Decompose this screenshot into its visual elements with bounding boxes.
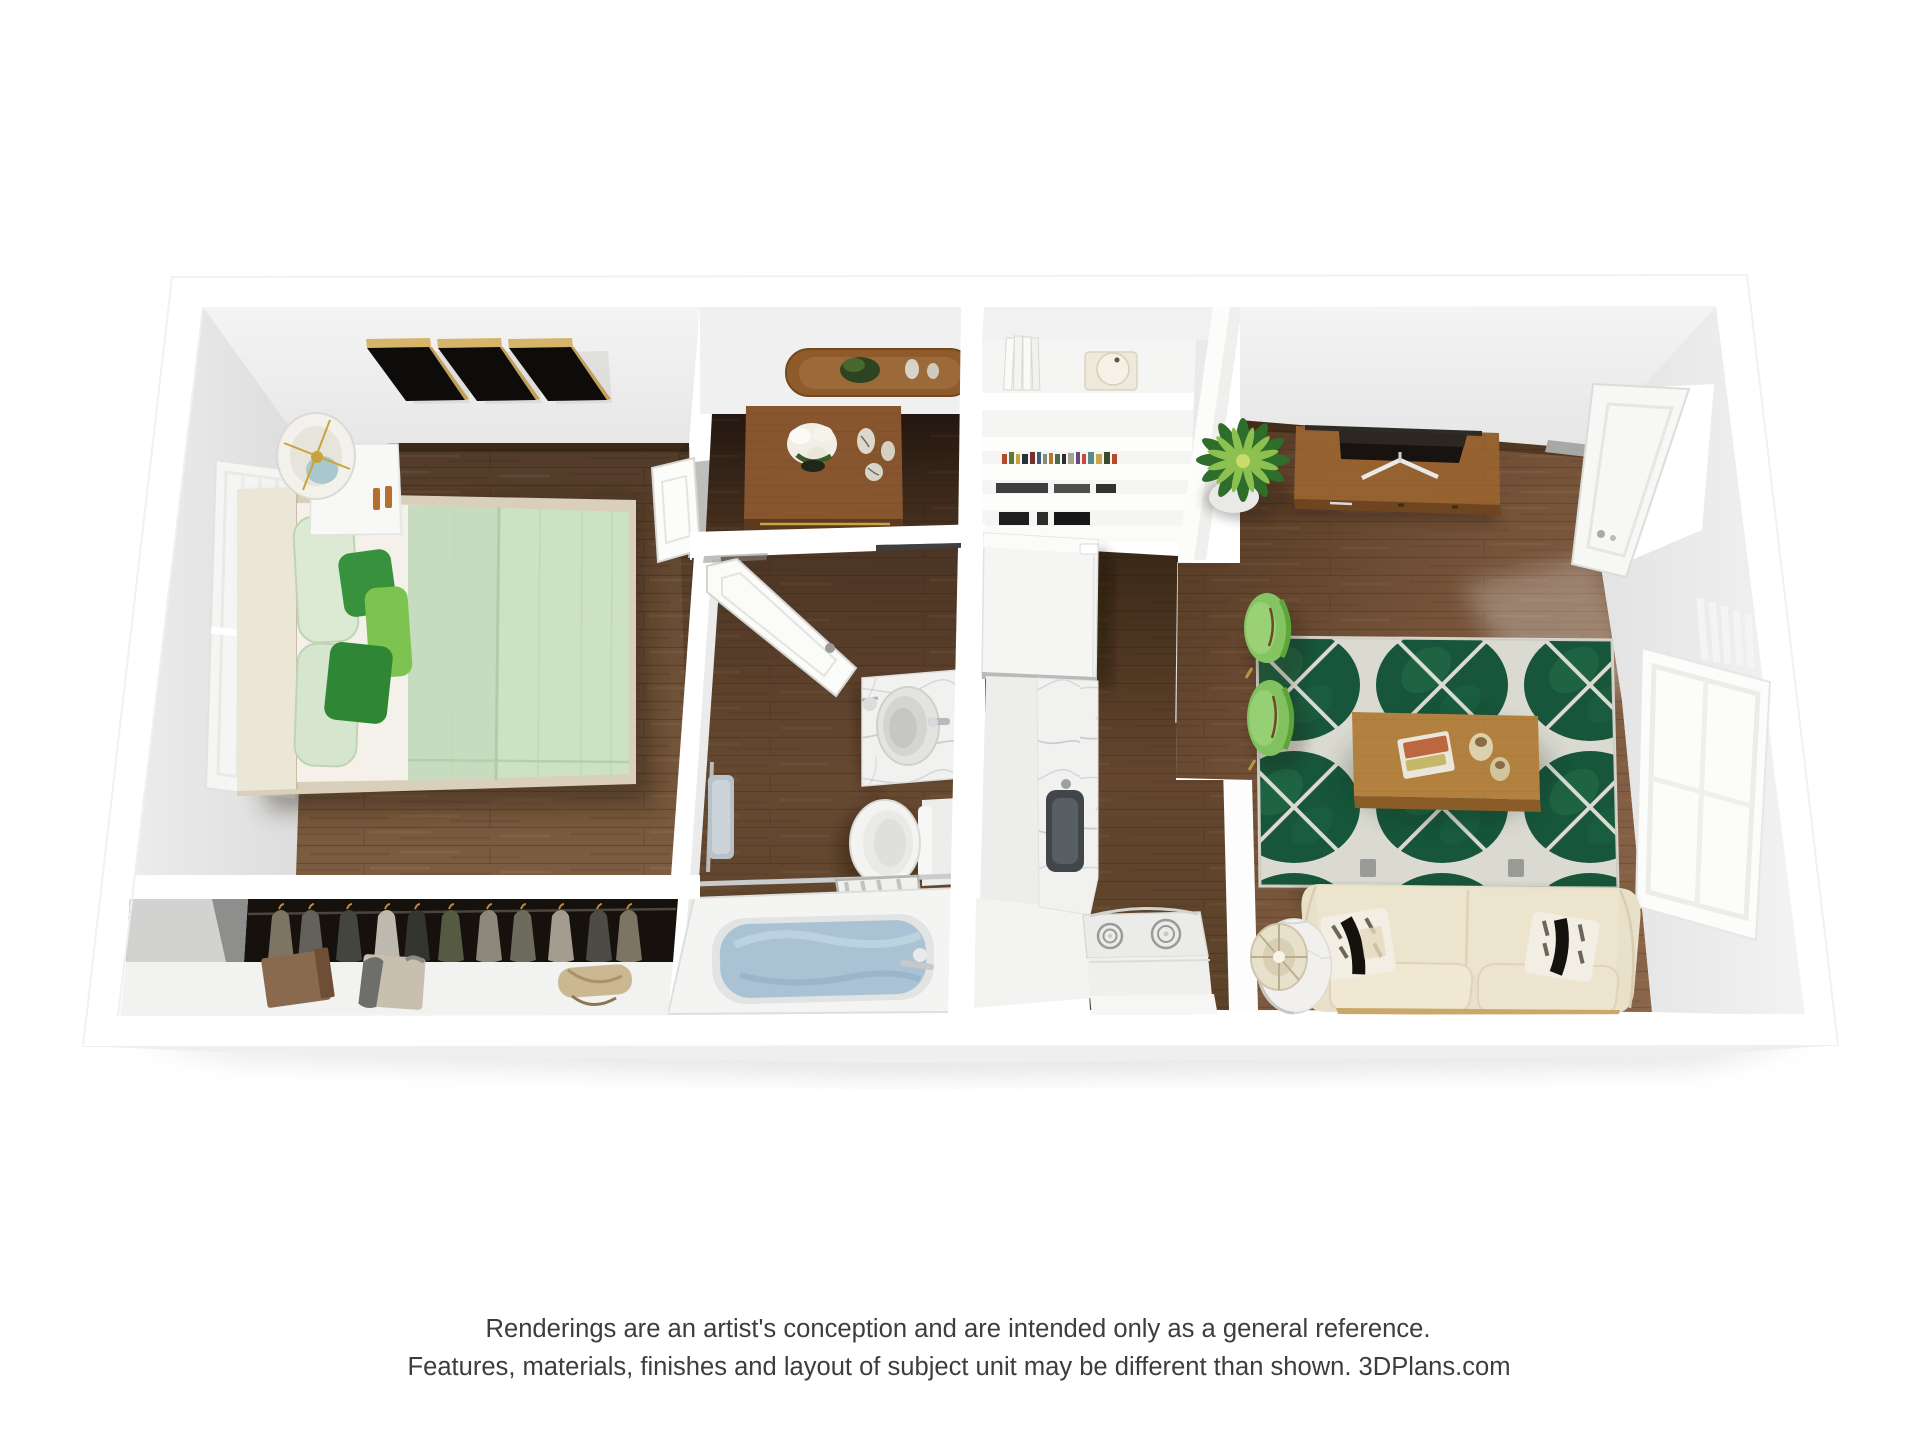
svg-text:Renderings are an artist's con: Renderings are an artist's conception an…	[486, 1315, 1431, 1343]
svg-text:Features, materials, finishes: Features, materials, finishes and layout…	[408, 1353, 1511, 1381]
